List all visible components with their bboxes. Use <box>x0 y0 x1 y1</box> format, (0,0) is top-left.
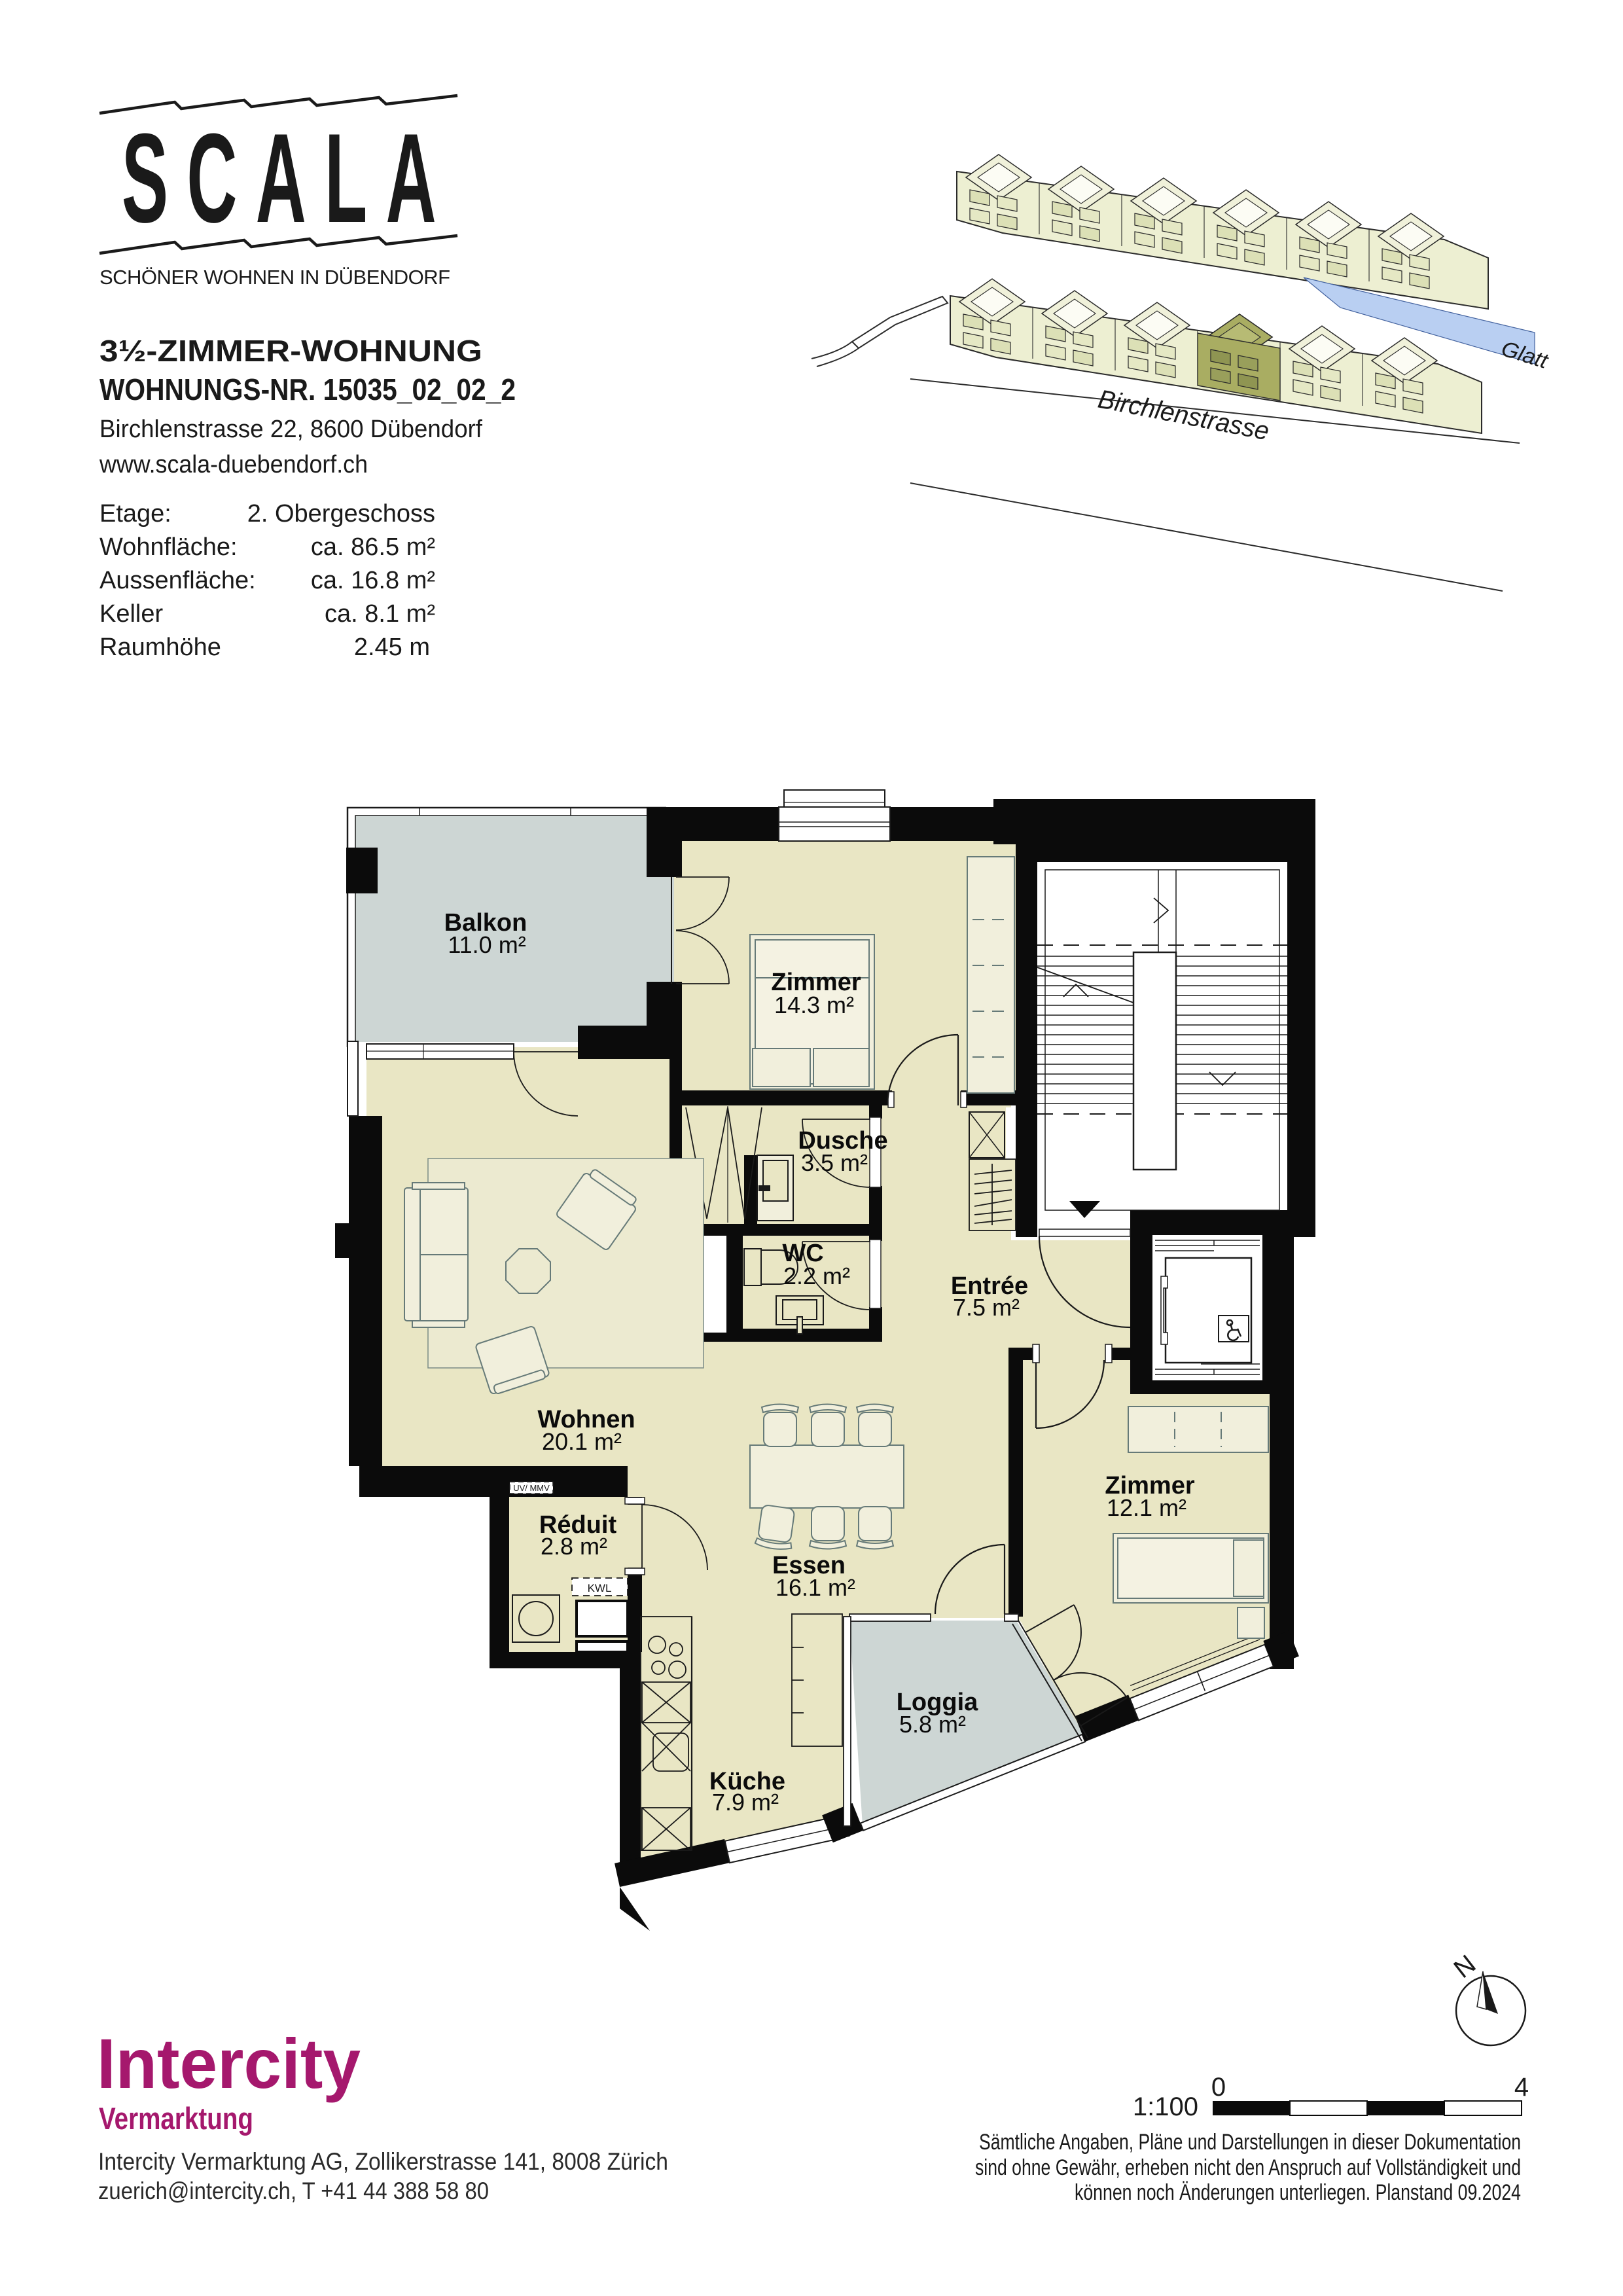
svg-text:2.8 m²: 2.8 m² <box>541 1533 607 1560</box>
svg-text:1:100: 1:100 <box>1133 2092 1198 2121</box>
svg-text:Vermarktung: Vermarktung <box>99 2101 253 2136</box>
svg-text:können noch Änderungen unterli: können noch Änderungen unterliegen. Plan… <box>1075 2180 1521 2205</box>
svg-text:ca. 8.1 m²: ca. 8.1 m² <box>325 600 435 628</box>
svg-text:2.2 m²: 2.2 m² <box>783 1263 850 1289</box>
svg-text:Birchlenstrasse 22, 8600 Düben: Birchlenstrasse 22, 8600 Dübendorf <box>99 416 482 443</box>
svg-text:Raumhöhe: Raumhöhe <box>99 634 221 661</box>
svg-text:KWL: KWL <box>588 1582 612 1594</box>
svg-text:11.0 m²: 11.0 m² <box>448 931 526 958</box>
svg-text:5.8 m²: 5.8 m² <box>899 1711 966 1738</box>
svg-text:Wohnfläche:: Wohnfläche: <box>99 533 238 561</box>
svg-text:4: 4 <box>1514 2073 1529 2102</box>
svg-text:ca. 86.5 m²: ca. 86.5 m² <box>311 533 435 561</box>
svg-text:Intercity Vermarktung AG, Zoll: Intercity Vermarktung AG, Zollikerstrass… <box>98 2148 668 2175</box>
svg-text:WOHNUNGS-NR. 15035_02_02_2: WOHNUNGS-NR. 15035_02_02_2 <box>99 372 516 406</box>
svg-text:20.1 m²: 20.1 m² <box>542 1428 622 1455</box>
svg-text:Keller: Keller <box>99 600 163 628</box>
svg-text:7.9 m²: 7.9 m² <box>712 1789 779 1816</box>
svg-text:Sämtliche Angaben, Pläne und D: Sämtliche Angaben, Pläne und Darstellung… <box>979 2130 1521 2155</box>
svg-text:zuerich@intercity.ch, T +41 44: zuerich@intercity.ch, T +41 44 388 58 80 <box>98 2178 489 2204</box>
svg-text:3.5 m²: 3.5 m² <box>801 1149 868 1176</box>
svg-text:www.scala-duebendorf.ch: www.scala-duebendorf.ch <box>99 451 368 478</box>
svg-text:Etage:: Etage: <box>99 500 171 528</box>
svg-text:ca. 16.8 m²: ca. 16.8 m² <box>311 567 435 594</box>
svg-text:Aussenfläche:: Aussenfläche: <box>99 567 256 594</box>
svg-text:Glatt: Glatt <box>1499 336 1552 373</box>
svg-text:16.1 m²: 16.1 m² <box>776 1574 855 1601</box>
svg-text:SCHÖNER WOHNEN IN DÜBENDORF: SCHÖNER WOHNEN IN DÜBENDORF <box>99 266 450 289</box>
svg-text:2.45 m: 2.45 m <box>354 634 430 661</box>
svg-text:14.3 m²: 14.3 m² <box>774 992 854 1018</box>
svg-text:2. Obergeschoss: 2. Obergeschoss <box>247 500 435 528</box>
svg-text:sind ohne Gewähr, erheben nich: sind ohne Gewähr, erheben nicht den Ansp… <box>975 2155 1521 2180</box>
svg-text:3½-ZIMMER-WOHNUNG: 3½-ZIMMER-WOHNUNG <box>99 334 482 368</box>
svg-text:Intercity: Intercity <box>97 2024 361 2103</box>
svg-text:SCALA: SCALA <box>122 107 437 249</box>
svg-text:12.1 m²: 12.1 m² <box>1107 1494 1186 1521</box>
svg-text:UV/ MMV: UV/ MMV <box>513 1483 550 1493</box>
svg-text:7.5 m²: 7.5 m² <box>953 1294 1020 1321</box>
svg-text:0: 0 <box>1211 2073 1226 2102</box>
